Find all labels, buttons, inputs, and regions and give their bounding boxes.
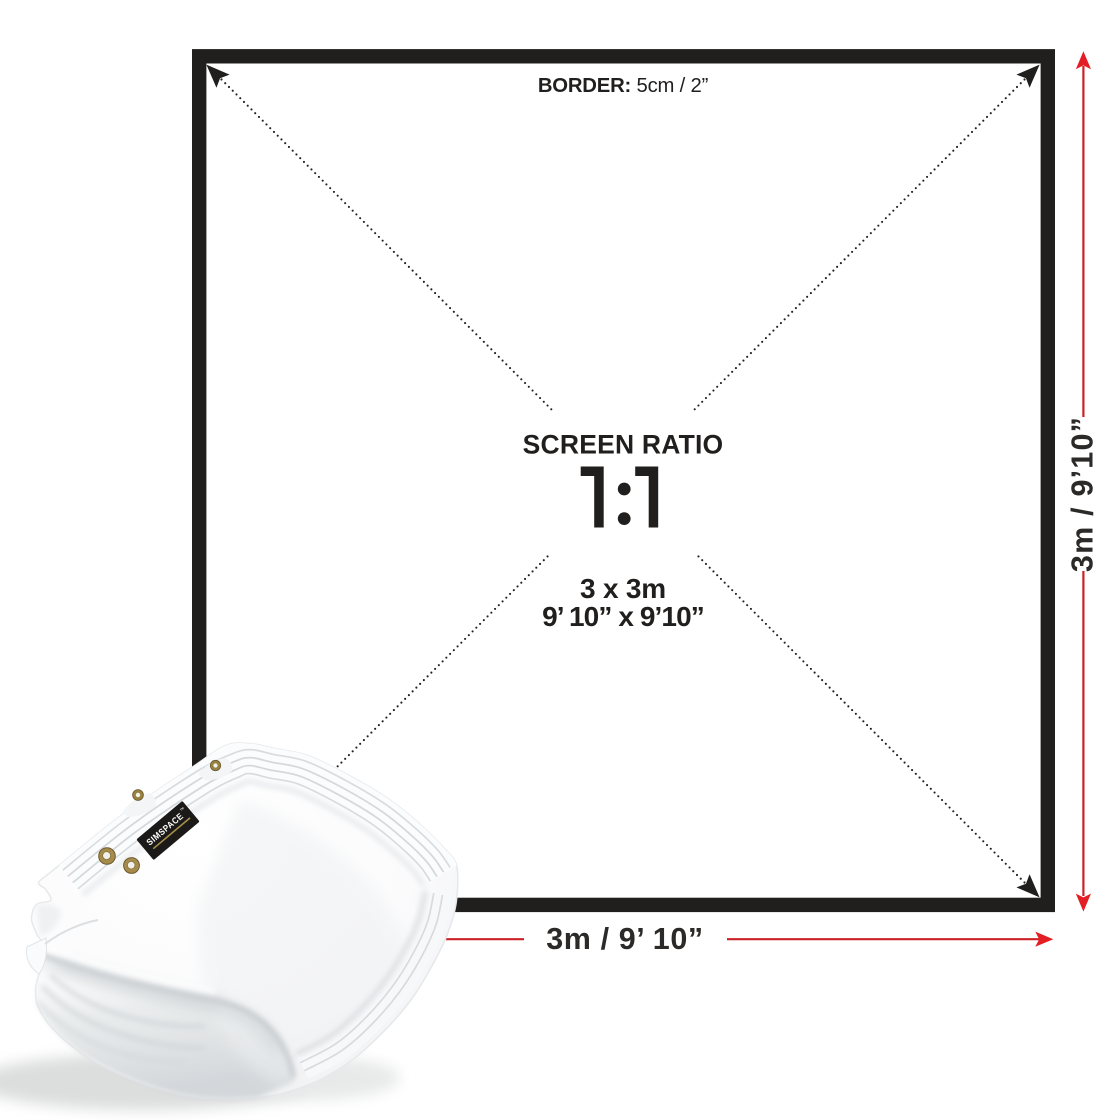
svg-text:3 x 3m: 3 x 3m <box>580 573 666 604</box>
svg-text:3m / 9’10”: 3m / 9’10” <box>1066 416 1100 572</box>
svg-text:3m / 9’ 10”: 3m / 9’ 10” <box>546 922 704 956</box>
svg-text:SCREEN RATIO: SCREEN RATIO <box>523 430 724 460</box>
svg-text:9’ 10” x 9’10”: 9’ 10” x 9’10” <box>542 601 704 632</box>
svg-text:BORDER: 5cm / 2”: BORDER: 5cm / 2” <box>538 75 709 97</box>
